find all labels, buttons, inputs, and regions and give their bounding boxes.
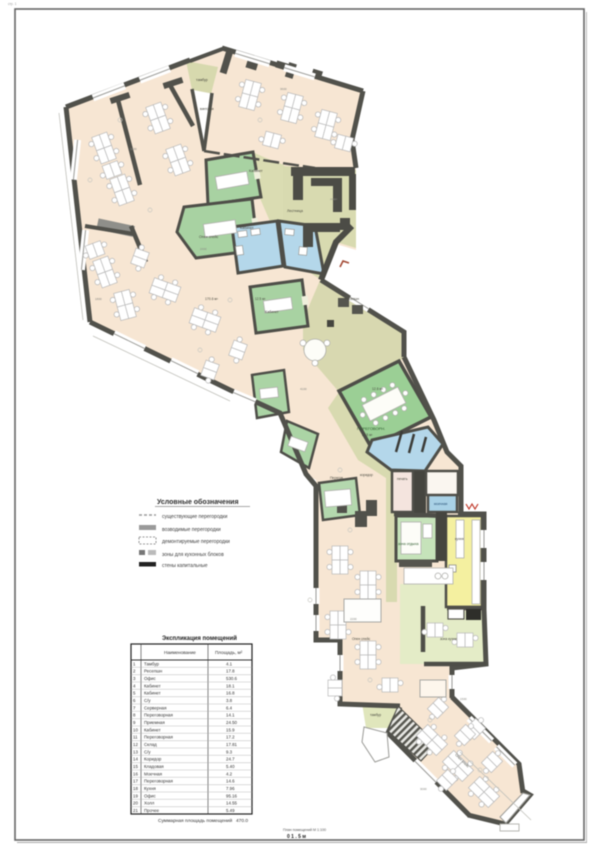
svg-text:28.5 м²: 28.5 м²	[362, 433, 372, 437]
svg-text:12.5 м²: 12.5 м²	[255, 297, 265, 301]
svg-text:ПЕРЕГОВОРН.: ПЕРЕГОВОРН.	[357, 426, 385, 431]
svg-text:2400: 2400	[200, 247, 207, 251]
svg-text:План помещений М 1:100: План помещений М 1:100	[283, 828, 326, 832]
svg-text:14.55: 14.55	[226, 801, 238, 806]
svg-text:530.6: 530.6	[226, 676, 238, 681]
svg-text:3.8: 3.8	[226, 698, 233, 703]
svg-text:95.16: 95.16	[226, 793, 238, 798]
svg-text:Лестница: Лестница	[287, 209, 303, 213]
svg-text:17.81: 17.81	[226, 742, 238, 747]
svg-text:Ресепшн: Ресепшн	[345, 297, 359, 301]
svg-text:Офис: Офис	[144, 676, 156, 681]
svg-text:моечная: моечная	[434, 502, 448, 506]
svg-text:зоны для кухонных блоков: зоны для кухонных блоков	[162, 552, 224, 558]
svg-text:демонтируемые перегородки: демонтируемые перегородки	[162, 539, 230, 545]
svg-text:Суммарная площадь помещений: Суммарная площадь помещений	[158, 817, 232, 824]
svg-text:лифт: лифт	[330, 197, 338, 201]
svg-text:стены капитальные: стены капитальные	[162, 563, 208, 569]
svg-text:12.6 м²: 12.6 м²	[372, 387, 384, 391]
svg-text:Прочее: Прочее	[144, 808, 160, 813]
svg-text:Холл: Холл	[144, 801, 155, 806]
svg-text:Кладовая: Кладовая	[144, 764, 164, 769]
svg-text:Кабинет: Кабинет	[265, 310, 279, 314]
svg-text:Кухня: Кухня	[144, 786, 156, 791]
svg-text:Кабинет: Кабинет	[144, 683, 161, 688]
svg-text:коридор: коридор	[360, 473, 373, 477]
svg-text:Ресепшн: Ресепшн	[144, 669, 163, 674]
svg-text:13: 13	[133, 749, 138, 754]
svg-text:Кабинет: Кабинет	[249, 169, 263, 173]
svg-text:20: 20	[133, 801, 138, 806]
svg-text:470.0: 470.0	[236, 818, 248, 824]
svg-text:стр. 1: стр. 1	[8, 2, 17, 6]
svg-text:Коридор: Коридор	[144, 757, 162, 762]
svg-text:Экспликация помещений: Экспликация помещений	[162, 635, 237, 642]
svg-text:Кабинет: Кабинет	[144, 691, 161, 696]
svg-text:14.6: 14.6	[226, 779, 235, 784]
svg-text:1500: 1500	[460, 697, 467, 701]
svg-text:Переговорная: Переговорная	[144, 779, 173, 784]
svg-text:Перегов.: Перегов.	[330, 476, 344, 480]
svg-text:Офис: Офис	[144, 793, 156, 798]
svg-text:18: 18	[133, 786, 138, 791]
svg-text:2200: 2200	[350, 617, 357, 621]
svg-text:Опен спейс: Опен спейс	[352, 637, 370, 641]
svg-text:6.4: 6.4	[226, 705, 233, 710]
svg-text:Переговорная: Переговорная	[144, 735, 173, 740]
svg-text:кухня: кухня	[455, 537, 464, 541]
svg-text:18.1: 18.1	[226, 683, 235, 688]
svg-text:Наименование: Наименование	[164, 650, 196, 655]
svg-text:зона кухни: зона кухни	[440, 637, 457, 641]
svg-text:Опен спейс: Опен спейс	[199, 235, 218, 239]
svg-text:17: 17	[133, 779, 138, 784]
svg-text:10: 10	[133, 727, 138, 732]
svg-text:0 1 . 5 м: 0 1 . 5 м	[287, 834, 306, 840]
svg-text:170.6 м²: 170.6 м²	[205, 297, 219, 301]
svg-text:винтовая: винтовая	[200, 107, 214, 111]
svg-text:Моечная: Моечная	[144, 771, 163, 776]
svg-text:14: 14	[133, 757, 138, 762]
svg-text:5.40: 5.40	[226, 764, 235, 769]
svg-text:3600: 3600	[280, 87, 287, 91]
svg-text:печать: печать	[397, 477, 408, 481]
svg-text:Переговорная: Переговорная	[144, 713, 173, 718]
svg-text:Кабинет: Кабинет	[240, 226, 254, 230]
svg-text:16: 16	[133, 771, 138, 776]
svg-text:14.1: 14.1	[226, 713, 235, 718]
svg-text:3000: 3000	[420, 787, 427, 791]
svg-text:возводимые перегородки: возводимые перегородки	[162, 527, 221, 533]
svg-text:19: 19	[133, 793, 138, 798]
svg-text:зона отдыха: зона отдыха	[398, 542, 418, 546]
svg-text:Склад: Склад	[144, 742, 157, 747]
svg-text:24.7: 24.7	[226, 757, 235, 762]
svg-text:4.2: 4.2	[226, 771, 233, 776]
svg-text:7.96: 7.96	[226, 786, 235, 791]
svg-text:21: 21	[133, 808, 138, 813]
svg-text:4.1: 4.1	[226, 661, 233, 666]
svg-text:С/у: С/у	[144, 749, 151, 754]
svg-text:тамбур: тамбур	[370, 713, 381, 717]
svg-text:существующие перегородки: существующие перегородки	[162, 514, 228, 520]
svg-text:15: 15	[133, 764, 138, 769]
svg-text:17.2: 17.2	[226, 735, 235, 740]
svg-text:5.49: 5.49	[226, 808, 235, 813]
svg-text:16.8: 16.8	[226, 691, 235, 696]
svg-text:Тамбур: Тамбур	[144, 661, 159, 666]
svg-text:Кабинет: Кабинет	[144, 727, 161, 732]
svg-text:17.8: 17.8	[226, 669, 235, 674]
svg-text:12: 12	[133, 742, 138, 747]
svg-text:11: 11	[133, 735, 138, 740]
svg-text:24.50: 24.50	[226, 720, 238, 725]
svg-text:Серверная: Серверная	[144, 705, 167, 710]
svg-text:4100: 4100	[300, 387, 307, 391]
svg-text:тамбур: тамбур	[196, 78, 208, 82]
svg-text:3200: 3200	[130, 147, 137, 151]
svg-text:Площадь, м²: Площадь, м²	[215, 650, 243, 655]
svg-text:15.9: 15.9	[226, 727, 235, 732]
svg-text:С/у: С/у	[144, 698, 151, 703]
svg-text:Условные обозначения: Условные обозначения	[157, 498, 239, 506]
svg-text:Приемная: Приемная	[144, 720, 165, 725]
svg-text:1800: 1800	[95, 297, 102, 301]
svg-text:9.3: 9.3	[226, 749, 233, 754]
